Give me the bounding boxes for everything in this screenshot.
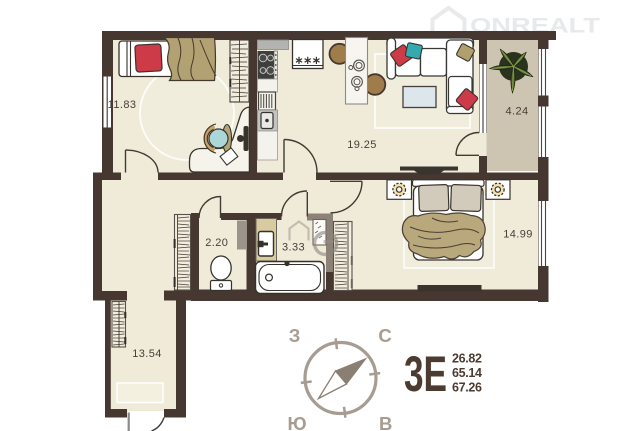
svg-text:С: С: [378, 325, 391, 346]
svg-text:67.26: 67.26: [452, 381, 482, 395]
svg-text:В: В: [379, 413, 392, 431]
svg-text:65.14: 65.14: [452, 366, 482, 380]
svg-text:14.99: 14.99: [503, 229, 533, 241]
svg-text:З: З: [289, 325, 301, 346]
svg-text:2.20: 2.20: [205, 237, 228, 249]
svg-text:3.33: 3.33: [282, 242, 305, 254]
svg-text:26.82: 26.82: [452, 352, 482, 366]
svg-text:3Е: 3Е: [404, 346, 447, 402]
svg-text:4.24: 4.24: [505, 106, 528, 118]
svg-text:13.54: 13.54: [132, 348, 162, 360]
svg-text:19.25: 19.25: [347, 139, 377, 151]
svg-text:11.83: 11.83: [108, 99, 137, 111]
svg-text:Ю: Ю: [287, 413, 306, 431]
